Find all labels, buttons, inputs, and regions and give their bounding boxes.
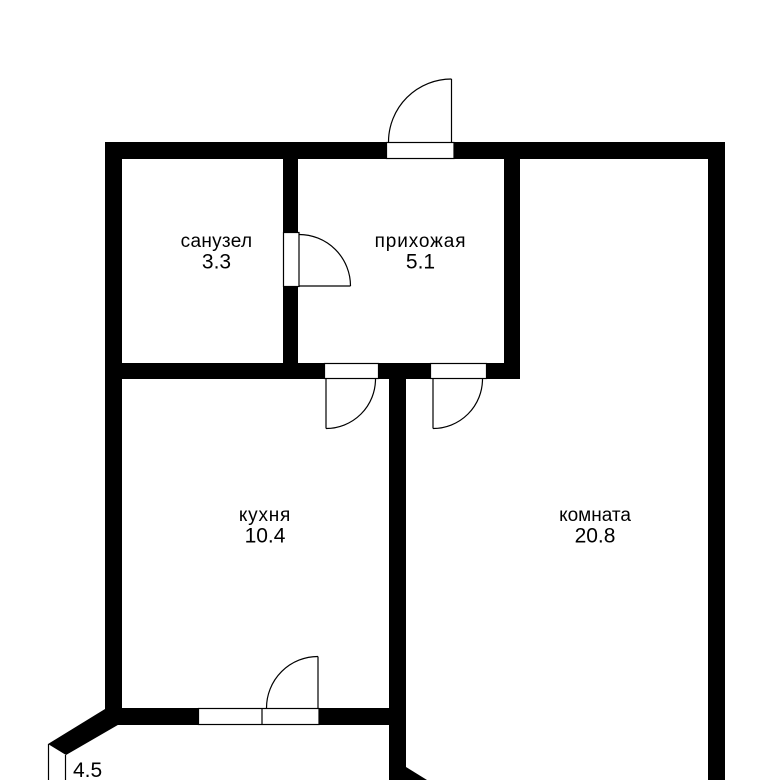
svg-text:санузел: санузел [181, 231, 253, 252]
svg-text:4.5: 4.5 [73, 759, 102, 780]
svg-text:5.1: 5.1 [406, 251, 435, 274]
svg-text:кухня: кухня [239, 505, 291, 526]
svg-text:3.3: 3.3 [202, 251, 231, 274]
svg-text:10.4: 10.4 [245, 525, 286, 548]
svg-text:прихожая: прихожая [375, 231, 467, 252]
svg-text:20.8: 20.8 [575, 525, 616, 548]
svg-text:комната: комната [559, 505, 631, 526]
